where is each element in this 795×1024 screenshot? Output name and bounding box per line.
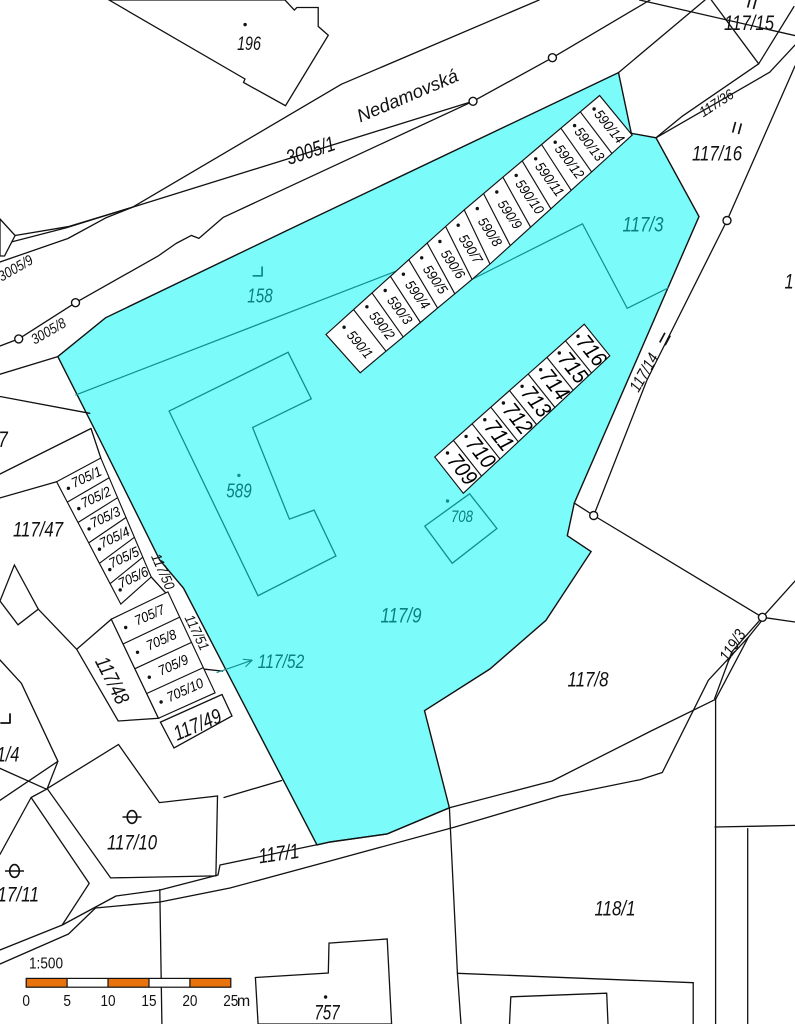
svg-text:158: 158 [247, 285, 272, 307]
svg-text:757: 757 [314, 1002, 340, 1024]
svg-text:117/8: 117/8 [568, 669, 609, 692]
svg-text:117/16: 117/16 [692, 143, 742, 166]
svg-text:20: 20 [182, 993, 197, 1010]
svg-text:1:500: 1:500 [29, 956, 63, 973]
svg-text:117/9: 117/9 [381, 605, 422, 628]
svg-text:118/1: 118/1 [595, 898, 636, 921]
svg-text:117/10: 117/10 [107, 832, 157, 855]
svg-text:117/3: 117/3 [623, 214, 664, 237]
svg-text:1: 1 [784, 271, 793, 294]
svg-text:196: 196 [237, 34, 261, 55]
svg-text:117/15: 117/15 [724, 12, 774, 35]
svg-text:708: 708 [451, 507, 474, 526]
svg-text:7: 7 [0, 427, 8, 452]
svg-text:1/4: 1/4 [0, 744, 19, 767]
svg-text:589: 589 [226, 480, 251, 502]
svg-text:10: 10 [100, 993, 115, 1010]
svg-text:117/11: 117/11 [0, 884, 39, 907]
svg-text:0: 0 [22, 993, 30, 1010]
svg-text:5: 5 [63, 993, 71, 1010]
svg-text:117/47: 117/47 [13, 519, 64, 542]
svg-text:15: 15 [141, 993, 156, 1010]
svg-text:117/52: 117/52 [258, 652, 305, 673]
svg-text:m: m [237, 993, 250, 1010]
